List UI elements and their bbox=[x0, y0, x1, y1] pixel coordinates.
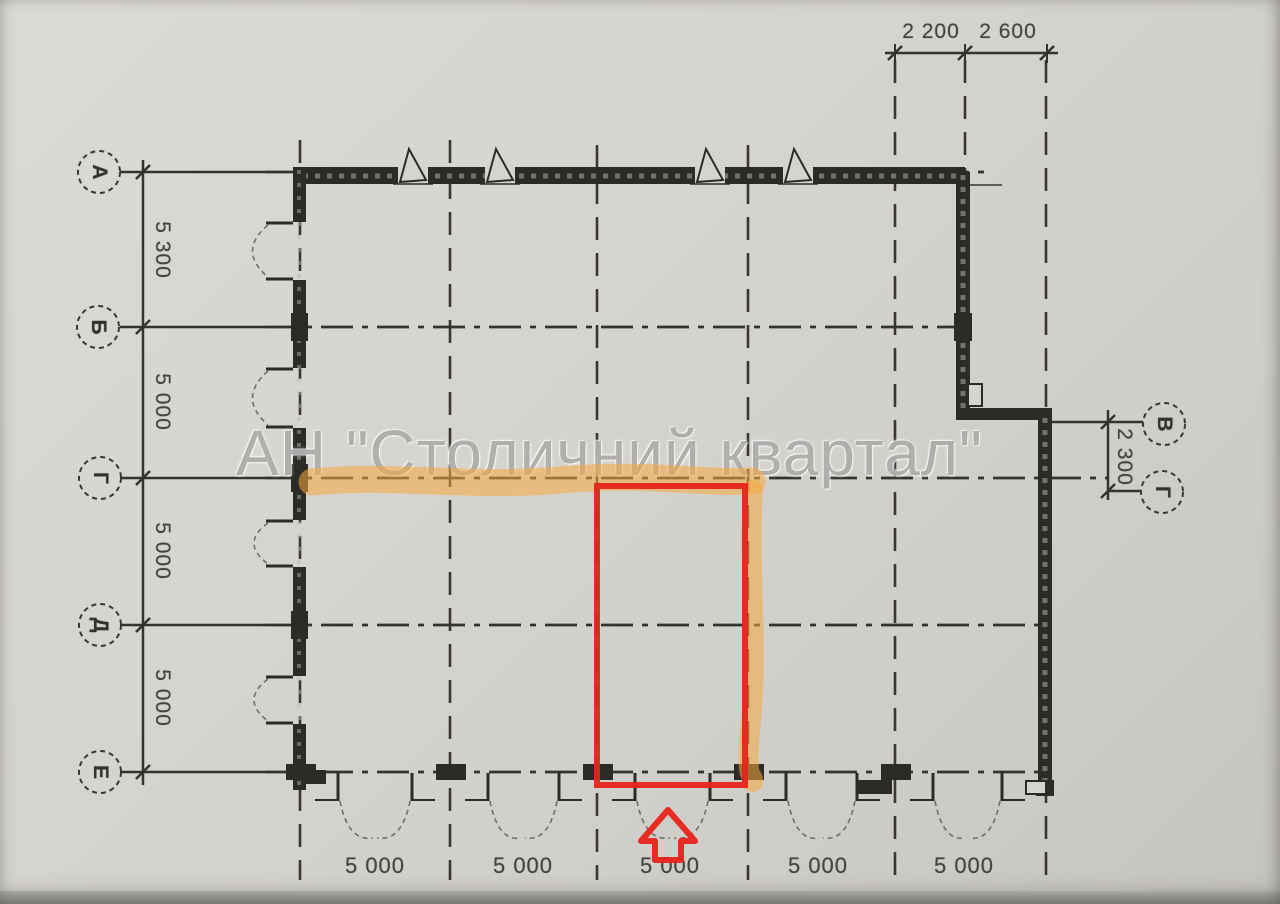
highlighter-strokes bbox=[312, 477, 754, 782]
red-selection-rectangle bbox=[597, 486, 745, 785]
red-up-arrow-icon bbox=[641, 810, 695, 860]
annotation-overlay bbox=[0, 0, 1280, 904]
highlighter-stroke-horizontal bbox=[312, 477, 752, 482]
photo-bottom-edge-shadow bbox=[0, 891, 1280, 904]
scanned-floor-plan-photo: А Б Г Д Е В Г 2 200 2 600 5 300 5 000 5 … bbox=[0, 0, 1280, 904]
highlighter-stroke-vertical bbox=[748, 490, 753, 782]
